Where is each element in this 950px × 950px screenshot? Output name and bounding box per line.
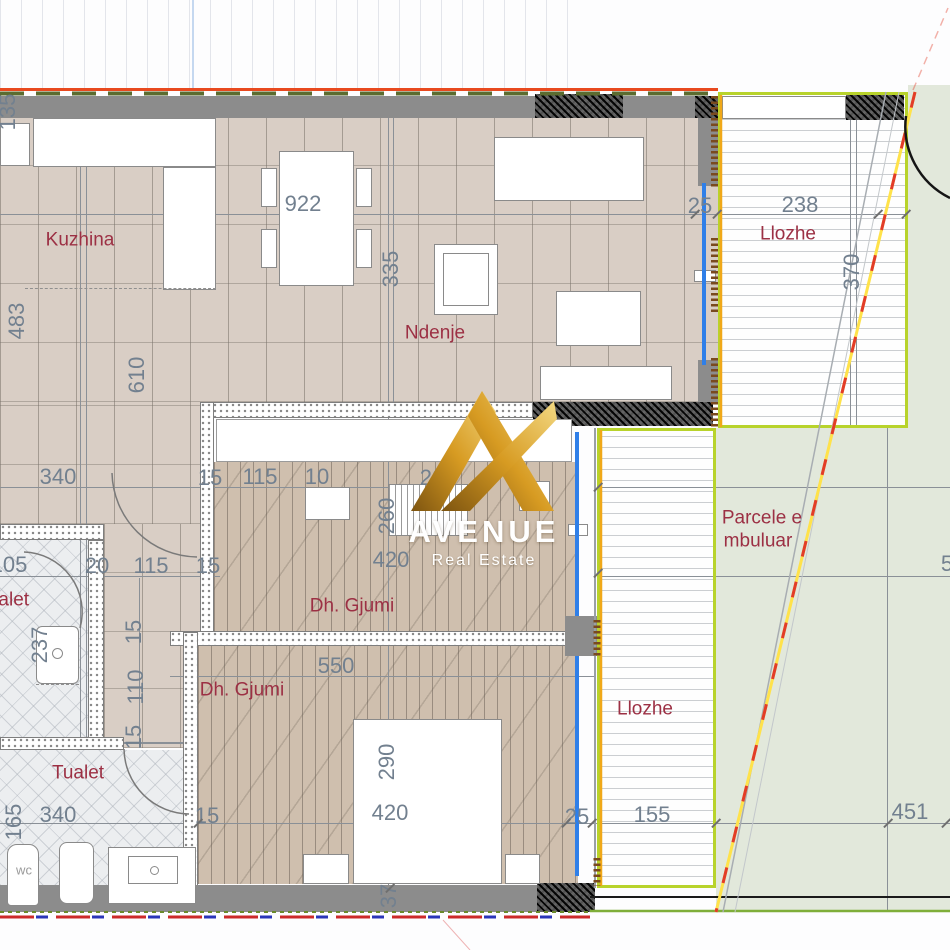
- room-label-llozhe-lower: Llozhe: [617, 700, 673, 719]
- dimension-label: 135: [0, 94, 19, 131]
- dimension-label: 20: [85, 555, 109, 577]
- dimension-label: 370: [841, 254, 863, 291]
- room-label-kuzhina: Kuzhina: [46, 231, 115, 250]
- room-label-parcele-line2: mbuluar: [724, 532, 793, 551]
- dimension-label: 290: [376, 744, 398, 781]
- room-label-llozhe-upper: Llozhe: [760, 225, 816, 244]
- dimension-label: 155: [634, 804, 671, 826]
- dimension-label: 483: [6, 303, 28, 340]
- room-label-dh-gjumi-lower: Dh. Gjumi: [200, 681, 284, 700]
- room-label-tualet-upper: Tualet: [0, 591, 29, 610]
- dimension-tick: [873, 209, 883, 219]
- dimension-label: 110: [125, 669, 147, 704]
- dimension-label: 15: [198, 467, 222, 489]
- room-label-tualet-lower: Tualet: [52, 764, 104, 783]
- dimension-label: 451: [892, 801, 929, 823]
- room-label-parcele-line1: Parcele e: [722, 509, 802, 528]
- dimension-label: 15: [196, 555, 220, 577]
- dimension-label: 260: [376, 498, 398, 535]
- dimension-label: 25: [565, 806, 589, 828]
- dimension-tick: [593, 568, 603, 578]
- dimension-label: 10: [305, 466, 329, 488]
- logo-brand-text: AVENUE: [398, 514, 570, 550]
- dimension-label: 420: [372, 802, 409, 824]
- dimension-label: 15: [195, 805, 219, 827]
- dimension-label: 105: [0, 554, 27, 576]
- dimension-label: 115: [242, 466, 277, 488]
- dimension-label: 15: [123, 620, 145, 644]
- dimension-label: 238: [782, 194, 819, 216]
- logo-a-mark: [411, 391, 557, 511]
- floor-plan-canvas: KuzhinaNdenjeLlozheParcele embuluarDh. G…: [0, 0, 950, 950]
- logo-tagline-text: Real Estate: [398, 552, 570, 570]
- dimension-tick: [593, 482, 603, 492]
- watermark-logo: AVENUE Real Estate: [398, 391, 570, 569]
- dimension-label: 165: [3, 804, 25, 841]
- dimension-label: 15: [123, 725, 145, 749]
- room-label-wc: wc: [16, 864, 32, 877]
- dimension-tick: [941, 818, 950, 828]
- dimension-label: 340: [40, 466, 77, 488]
- dimension-tick: [711, 818, 721, 828]
- dimension-label: 922: [285, 193, 322, 215]
- dimension-label: 115: [133, 555, 168, 577]
- room-label-dh-gjumi-upper: Dh. Gjumi: [310, 597, 394, 616]
- room-label-ndenje: Ndenje: [405, 324, 465, 343]
- dimension-label: 237: [29, 627, 51, 664]
- dimension-label: 5: [941, 553, 950, 575]
- dimension-tick: [712, 209, 722, 219]
- dimension-label: 340: [40, 804, 77, 826]
- dimension-tick: [901, 209, 911, 219]
- dimension-label: 550: [318, 655, 355, 677]
- dimension-label: 335: [380, 251, 402, 288]
- dimension-label: 25: [688, 195, 712, 217]
- dimension-label: 610: [126, 357, 148, 394]
